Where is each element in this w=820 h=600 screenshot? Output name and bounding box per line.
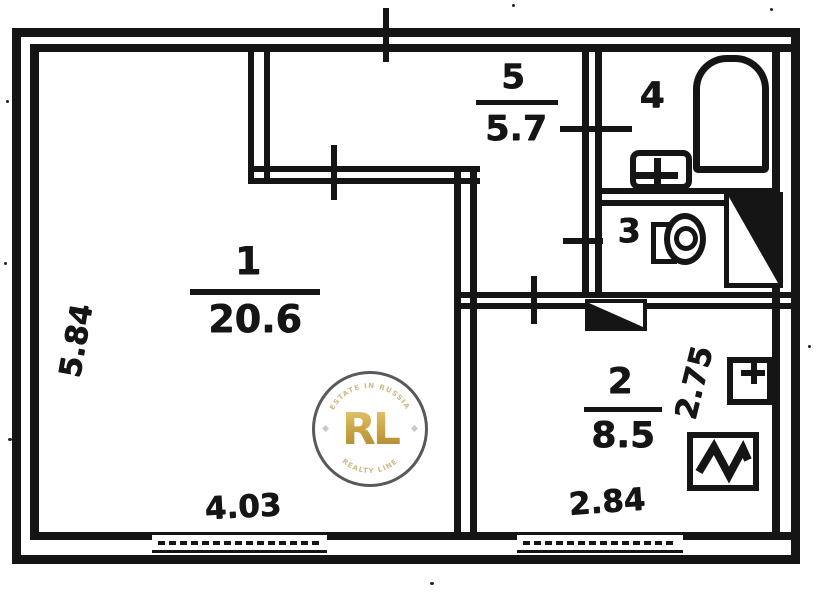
room1-area: 20.6	[180, 300, 330, 338]
wall-middle-vertical	[470, 168, 477, 540]
vent-box	[727, 357, 773, 405]
dim-bottom-left: 4.03	[187, 489, 298, 526]
room2-underline	[584, 407, 662, 412]
window-glazing	[158, 541, 321, 545]
window-line	[517, 550, 683, 553]
tick-top-wall	[383, 8, 389, 62]
room4-number: 4	[628, 78, 676, 114]
wall-bottom-inner	[30, 532, 152, 540]
scan-speck	[4, 262, 7, 265]
bathtub	[693, 55, 769, 173]
door-swing	[585, 299, 647, 331]
wall-hall-bath	[582, 44, 589, 296]
watermark-seal: ESTATE IN RUSSIA REALTY LINE RL	[312, 371, 428, 487]
tick-niche-wall	[331, 145, 337, 200]
room1-underline	[190, 289, 320, 295]
dim-left: 5.84	[54, 289, 101, 393]
vent-shaft-fill	[729, 197, 778, 283]
wall-bottom-outer	[12, 555, 800, 564]
scan-speck	[430, 582, 434, 585]
wall-middle-vertical	[454, 168, 461, 540]
window-line	[152, 550, 327, 553]
room1-number: 1	[213, 242, 283, 280]
wall-niche-bottom	[248, 178, 480, 184]
tick-hall-bath-wall	[560, 126, 632, 132]
svg-text:REALTY LINE: REALTY LINE	[340, 457, 399, 475]
dim-bottom-right: 2.84	[551, 483, 663, 522]
watermark-graphic: ESTATE IN RUSSIA REALTY LINE RL	[315, 374, 425, 484]
room5-number: 5	[483, 60, 543, 94]
wall-bottom-inner	[683, 532, 800, 540]
zigzag-icon	[693, 438, 753, 485]
wall-top-outer	[12, 28, 800, 37]
wall-top-inner	[30, 44, 800, 52]
room2-area: 8.5	[578, 418, 668, 454]
scan-speck	[512, 4, 515, 7]
door-swing-fill	[589, 303, 643, 327]
window-line	[152, 532, 327, 535]
floor-plan: 1 20.6 5 5.7 4 3 2 8.5 4.03 2.84 5.84 2.…	[0, 0, 820, 600]
vent-shaft	[724, 192, 783, 288]
tick-room2-door	[531, 276, 537, 324]
wall-niche-bottom	[248, 166, 480, 172]
toilet-bowl-inner	[674, 226, 698, 251]
wall-left-outer	[12, 28, 21, 564]
wall-wc-room2	[454, 292, 792, 298]
sink	[630, 150, 692, 190]
wall-hall-bath	[595, 44, 602, 296]
room2-number: 2	[590, 364, 650, 400]
room5-underline	[476, 100, 558, 105]
room5-area: 5.7	[468, 112, 564, 147]
scan-speck	[808, 345, 811, 348]
tick-wc-wall	[563, 238, 603, 244]
watermark-diamond-icon	[411, 425, 418, 432]
room3-number: 3	[608, 214, 650, 247]
wall-bottom-inner	[327, 532, 517, 540]
scan-speck	[770, 8, 773, 11]
wall-niche-left	[248, 44, 254, 184]
dim-right: 2.75	[668, 331, 721, 435]
watermark-arc-bottom-text: REALTY LINE	[340, 457, 399, 475]
wall-right-outer	[791, 28, 800, 564]
window-glazing	[523, 541, 677, 545]
ventilation-duct-symbol	[687, 432, 759, 491]
wall-left-inner	[30, 44, 39, 540]
scan-speck	[8, 438, 12, 441]
window-line	[517, 532, 683, 535]
vent-box-cross-icon	[751, 362, 757, 384]
watermark-diamond-icon	[322, 425, 329, 432]
sink-tap-icon	[654, 158, 661, 192]
scan-speck	[6, 100, 9, 103]
wall-niche-left	[264, 44, 270, 184]
watermark-monogram: RL	[342, 404, 400, 455]
